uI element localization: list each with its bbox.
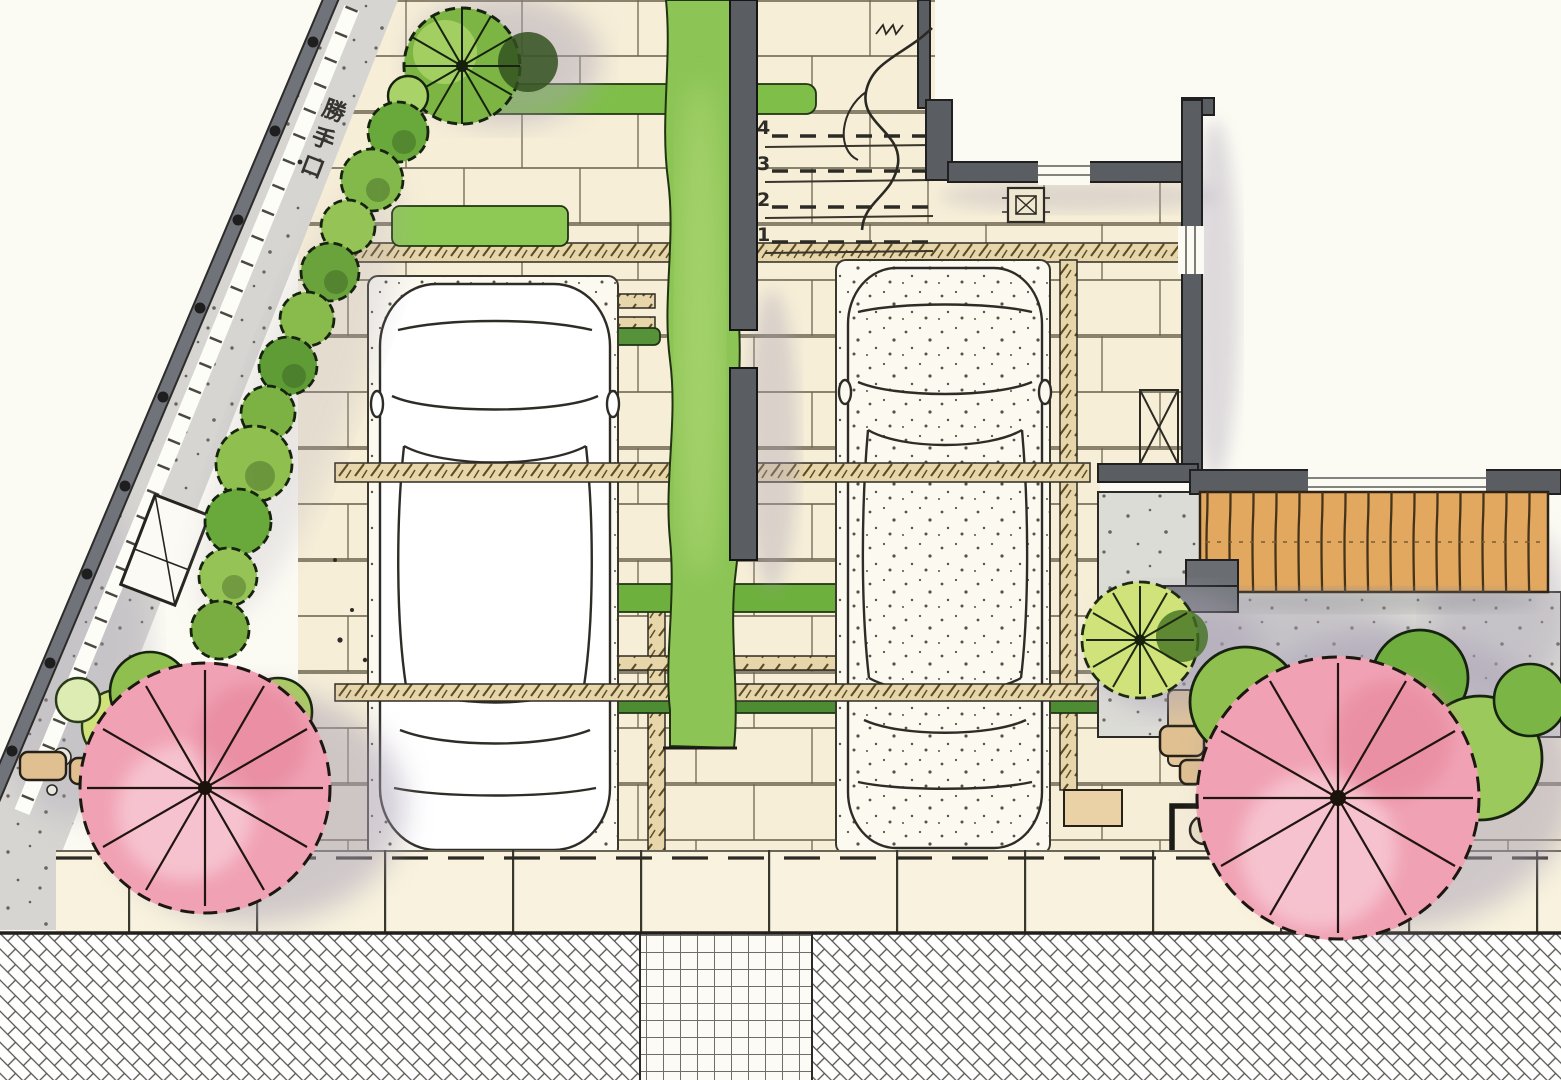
- site-plan-page: 4 3 2 1: [0, 0, 1561, 1080]
- car-right: [839, 268, 1051, 848]
- lawn-highlight: [678, 80, 722, 580]
- street-paving: [0, 933, 1561, 1080]
- shrub: [1494, 664, 1561, 736]
- step-number: 3: [757, 153, 770, 175]
- wood-deck: [1200, 492, 1548, 592]
- street-paving-herringbone-left: [0, 934, 640, 1080]
- deck-shadow: [1200, 588, 1540, 612]
- step-number: 2: [757, 189, 770, 211]
- door-opening: [1038, 158, 1090, 185]
- planting-strip-upper: [392, 206, 568, 246]
- street-paving-grid: [640, 934, 812, 1080]
- garden-wall-center: [730, 0, 757, 560]
- shrub: [205, 489, 271, 555]
- stone-slab: [1064, 790, 1122, 826]
- joint-band-vertical-center: [648, 600, 665, 858]
- house-wall-right-run: [1182, 100, 1202, 480]
- street-paving-herringbone-right: [812, 934, 1561, 1080]
- window-opening-right: [1178, 226, 1204, 274]
- tree-blossom-right: [1190, 630, 1561, 940]
- drain-grate: [1002, 188, 1050, 222]
- step-number: 4: [757, 117, 770, 139]
- step-number: 1: [757, 224, 770, 246]
- site-plan-drawing: 4 3 2 1: [0, 0, 1561, 1080]
- shrub: [191, 601, 249, 659]
- car-left: [371, 284, 619, 850]
- house-wall-top-thin: [918, 0, 930, 108]
